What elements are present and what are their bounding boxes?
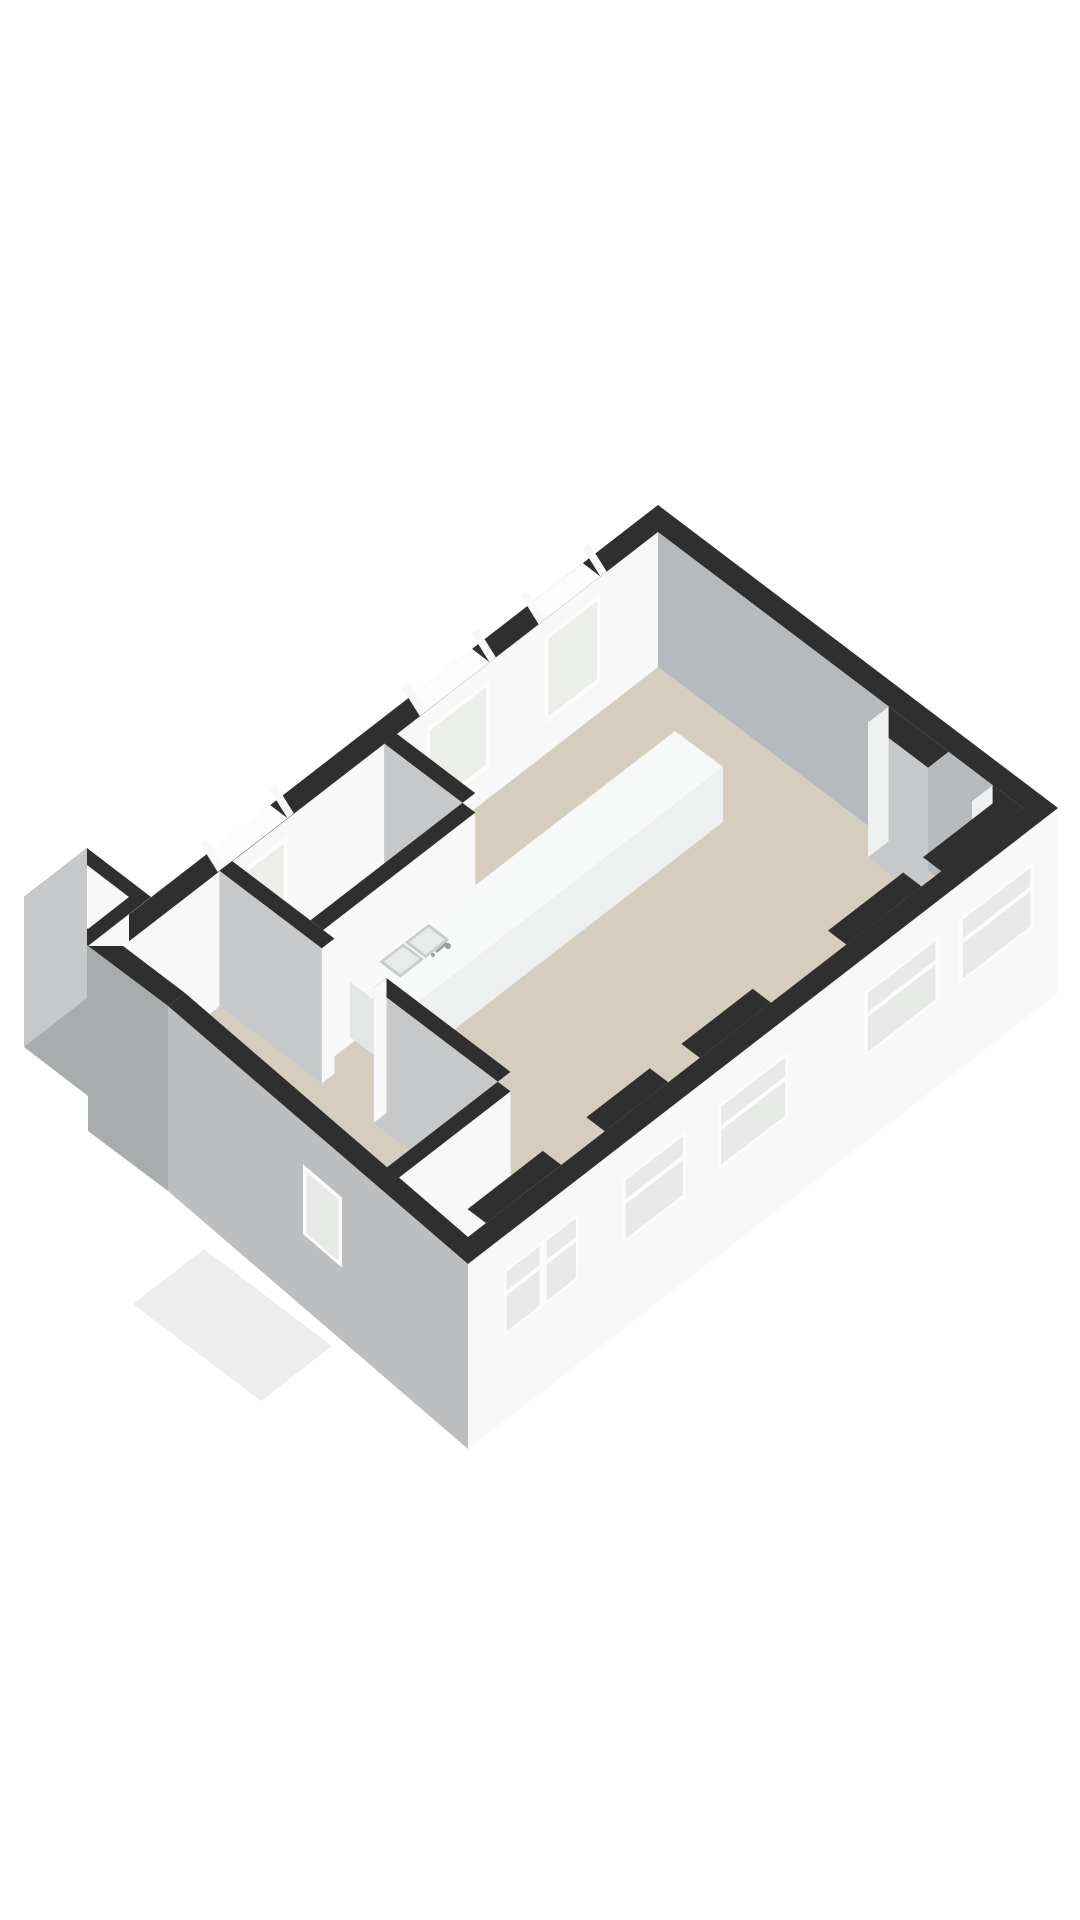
floorplan-3d-canvas <box>0 0 1080 1920</box>
wall-niche-1-west-face <box>868 706 889 857</box>
floorplan-page <box>0 0 1080 1920</box>
lower-room-doorway-west-jamb <box>322 939 335 1084</box>
faucet-base <box>445 943 451 949</box>
lower-room-doorway-east-jamb <box>374 978 387 1123</box>
facade-window-5-mullion <box>540 1238 547 1308</box>
faucet-handle <box>431 953 435 957</box>
